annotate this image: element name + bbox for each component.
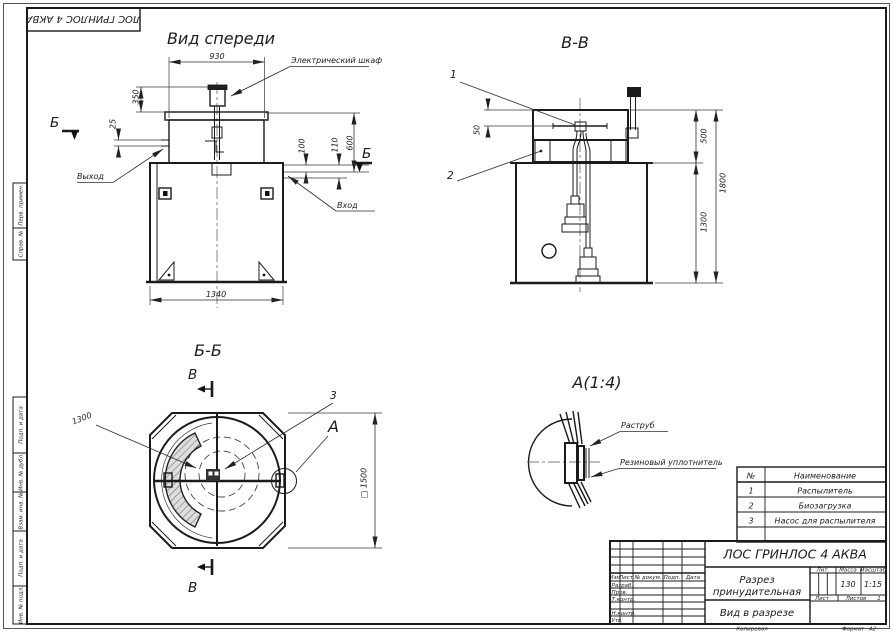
parts-col-name: Наименование [794,472,856,481]
dim-1300-vv: 1300 [700,212,709,232]
svg-text:Насос для распылителя: Насос для распылителя [775,517,876,526]
svg-text:1: 1 [748,487,753,496]
label-rubber-seal: Резиновый уплотнитель [620,458,723,467]
col-doc: № докум. [633,575,661,581]
masshtab-value: 1:15 [864,580,882,589]
massa-value: 130 [840,580,855,589]
drawing-canvas: ЛОС ГРИНЛОС 4 АКВА Перв. примен. Справ. … [0,0,893,632]
masshtab-label: Масштаб [860,568,887,574]
col-list: Лист [618,575,634,581]
col-podp: Подп. [664,575,681,581]
stamp-perv-primen: Перв. примен. [19,184,25,226]
dim-1800: 1800 [719,173,728,193]
callout-3: 3 [330,390,337,402]
section-bb-title: Б-Б [194,341,222,360]
section-marker-v-bottom: В [188,580,197,596]
stamp-inv-dubl: Инв. № дубл. [19,453,25,491]
section-vv-title: В-В [561,33,589,52]
label-outlet: Выход [77,172,104,181]
col-data: Дата [685,575,701,581]
svg-text:Распылитель: Распылитель [797,487,853,496]
row-nkontr: Н.контр. [612,611,637,617]
dim-100: 100 [298,138,307,153]
format-label: Формат [842,627,865,632]
doc-designation: ЛОС ГРИНЛОС 4 АКВА [722,547,867,562]
listov-value: 1 [877,596,881,602]
massa-label: Масса [839,568,857,574]
row-prov: Пров. [612,590,628,596]
dim-110: 110 [331,137,340,152]
dim-930: 930 [209,52,224,61]
stamp-vzam-inv: Взам. инв. № [19,492,25,530]
detail-a-label: А [327,417,339,436]
format-value: А2 [868,627,877,632]
lit-label: Лит. [816,568,830,574]
section-marker-b-left: Б [50,115,59,131]
svg-text:Биозагрузка: Биозагрузка [799,502,852,511]
list-label: Лист [814,596,830,602]
doc-name-line1: Разрез [739,575,774,586]
label-electrical-cabinet: Электрический шкаф [290,56,382,65]
view-name: Вид в разрезе [720,608,794,619]
dim-350: 350 [132,89,141,104]
row-tkontr: Т.контр. [612,597,636,603]
callout-2: 2 [447,170,454,182]
row-utv: Утв. [612,618,624,624]
svg-text:2: 2 [748,502,753,511]
listov-label: Листов [845,596,867,602]
stamp-podp-data-1: Подп. и дата [19,406,25,444]
drawing-sheet: ЛОС ГРИНЛОС 4 АКВА Перв. примен. Справ. … [0,0,893,632]
corner-stamp-text: ЛОС ГРИНЛОС 4 АКВА [25,13,141,24]
callout-1: 1 [450,69,457,81]
label-socket: Раструб [621,421,655,430]
stamp-sprav-no: Справ. № [19,230,25,257]
parts-col-no: № [746,472,755,481]
stamp-inv-podl: Инв. № подл. [19,586,25,624]
section-marker-b-right: Б [362,146,371,162]
dim-1500: □ 1500 [360,468,369,498]
dim-500: 500 [700,128,709,143]
doc-name-line2: принудительная [713,587,801,598]
dim-25: 25 [109,119,118,129]
section-marker-v-top: В [188,367,197,383]
row-razrab: Разраб. [612,583,634,589]
copied-label: Копировал [736,627,768,632]
detail-a-title: А(1:4) [571,373,621,392]
front-view-title: Вид спереди [167,29,275,48]
dim-50: 50 [473,125,482,135]
dim-1340: 1340 [206,290,226,299]
label-inlet: Вход [337,201,358,210]
dim-600: 600 [346,135,355,150]
stamp-podp-data-2: Подп. и дата [19,539,25,577]
svg-text:3: 3 [748,517,753,526]
